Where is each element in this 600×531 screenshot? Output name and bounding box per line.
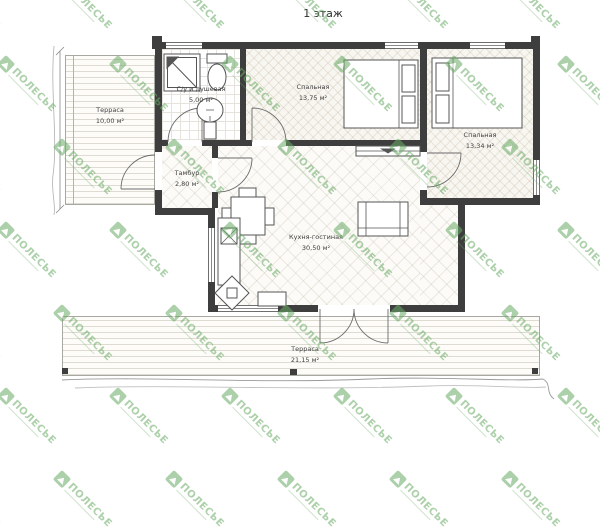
room-label-kitchen-living: Кухня-гостиная30,50 м² bbox=[256, 232, 376, 255]
dimension-line bbox=[53, 46, 64, 215]
room-label-terrace-left: Терраса10,00 м² bbox=[70, 105, 150, 128]
watermark-text: ПОЛЕСЬЕ bbox=[514, 481, 562, 529]
floor-plan: 1 этаж bbox=[0, 0, 600, 424]
double-bed-icon bbox=[432, 58, 522, 128]
watermark: ПОЛЕСЬЕ bbox=[53, 470, 114, 531]
kitchen-counter-icon bbox=[218, 218, 240, 285]
ground-line bbox=[62, 378, 554, 399]
terrace-french-door bbox=[354, 309, 388, 343]
watermark: ПОЛЕСЬЕ bbox=[0, 470, 2, 531]
page-title: 1 этаж bbox=[253, 7, 393, 20]
watermark-text: ПОЛЕСЬЕ bbox=[66, 481, 114, 529]
watermark: ПОЛЕСЬЕ bbox=[165, 470, 226, 531]
tv-stand-icon bbox=[356, 146, 420, 156]
watermark: ПОЛЕСЬЕ bbox=[501, 470, 562, 531]
room-label-bathroom: С/у и душевая5,00 м² bbox=[162, 84, 240, 107]
door-arcs bbox=[121, 108, 461, 343]
terrace-posts bbox=[62, 368, 538, 375]
room-label-bedroom-2: Спальная13,34 м² bbox=[430, 130, 530, 153]
watermark-text: ПОЛЕСЬЕ bbox=[0, 481, 2, 529]
counter-icon bbox=[258, 292, 286, 306]
terrace-french-door bbox=[320, 309, 354, 343]
watermark-text: ПОЛЕСЬЕ bbox=[402, 481, 450, 529]
room-label-terrace-bottom: Терраса21,15 м² bbox=[255, 344, 355, 367]
sofa-icon bbox=[358, 202, 408, 236]
watermark: ПОЛЕСЬЕ bbox=[389, 470, 450, 531]
bedroom-2-door bbox=[427, 153, 461, 187]
room-label-bedroom-1: Спальная13,75 м² bbox=[258, 82, 368, 105]
watermark-logo-icon bbox=[501, 470, 519, 488]
watermark-text: ПОЛЕСЬЕ bbox=[178, 481, 226, 529]
room-label-vestibule: Тамбур2,80 м² bbox=[147, 168, 227, 191]
watermark-logo-icon bbox=[165, 470, 183, 488]
watermark-logo-icon bbox=[389, 470, 407, 488]
watermark: ПОЛЕСЬЕ bbox=[277, 470, 338, 531]
watermark-logo-icon bbox=[277, 470, 295, 488]
watermark-text: ПОЛЕСЬЕ bbox=[290, 481, 338, 529]
bedroom-1-door bbox=[252, 108, 286, 142]
watermark-logo-icon bbox=[53, 470, 71, 488]
